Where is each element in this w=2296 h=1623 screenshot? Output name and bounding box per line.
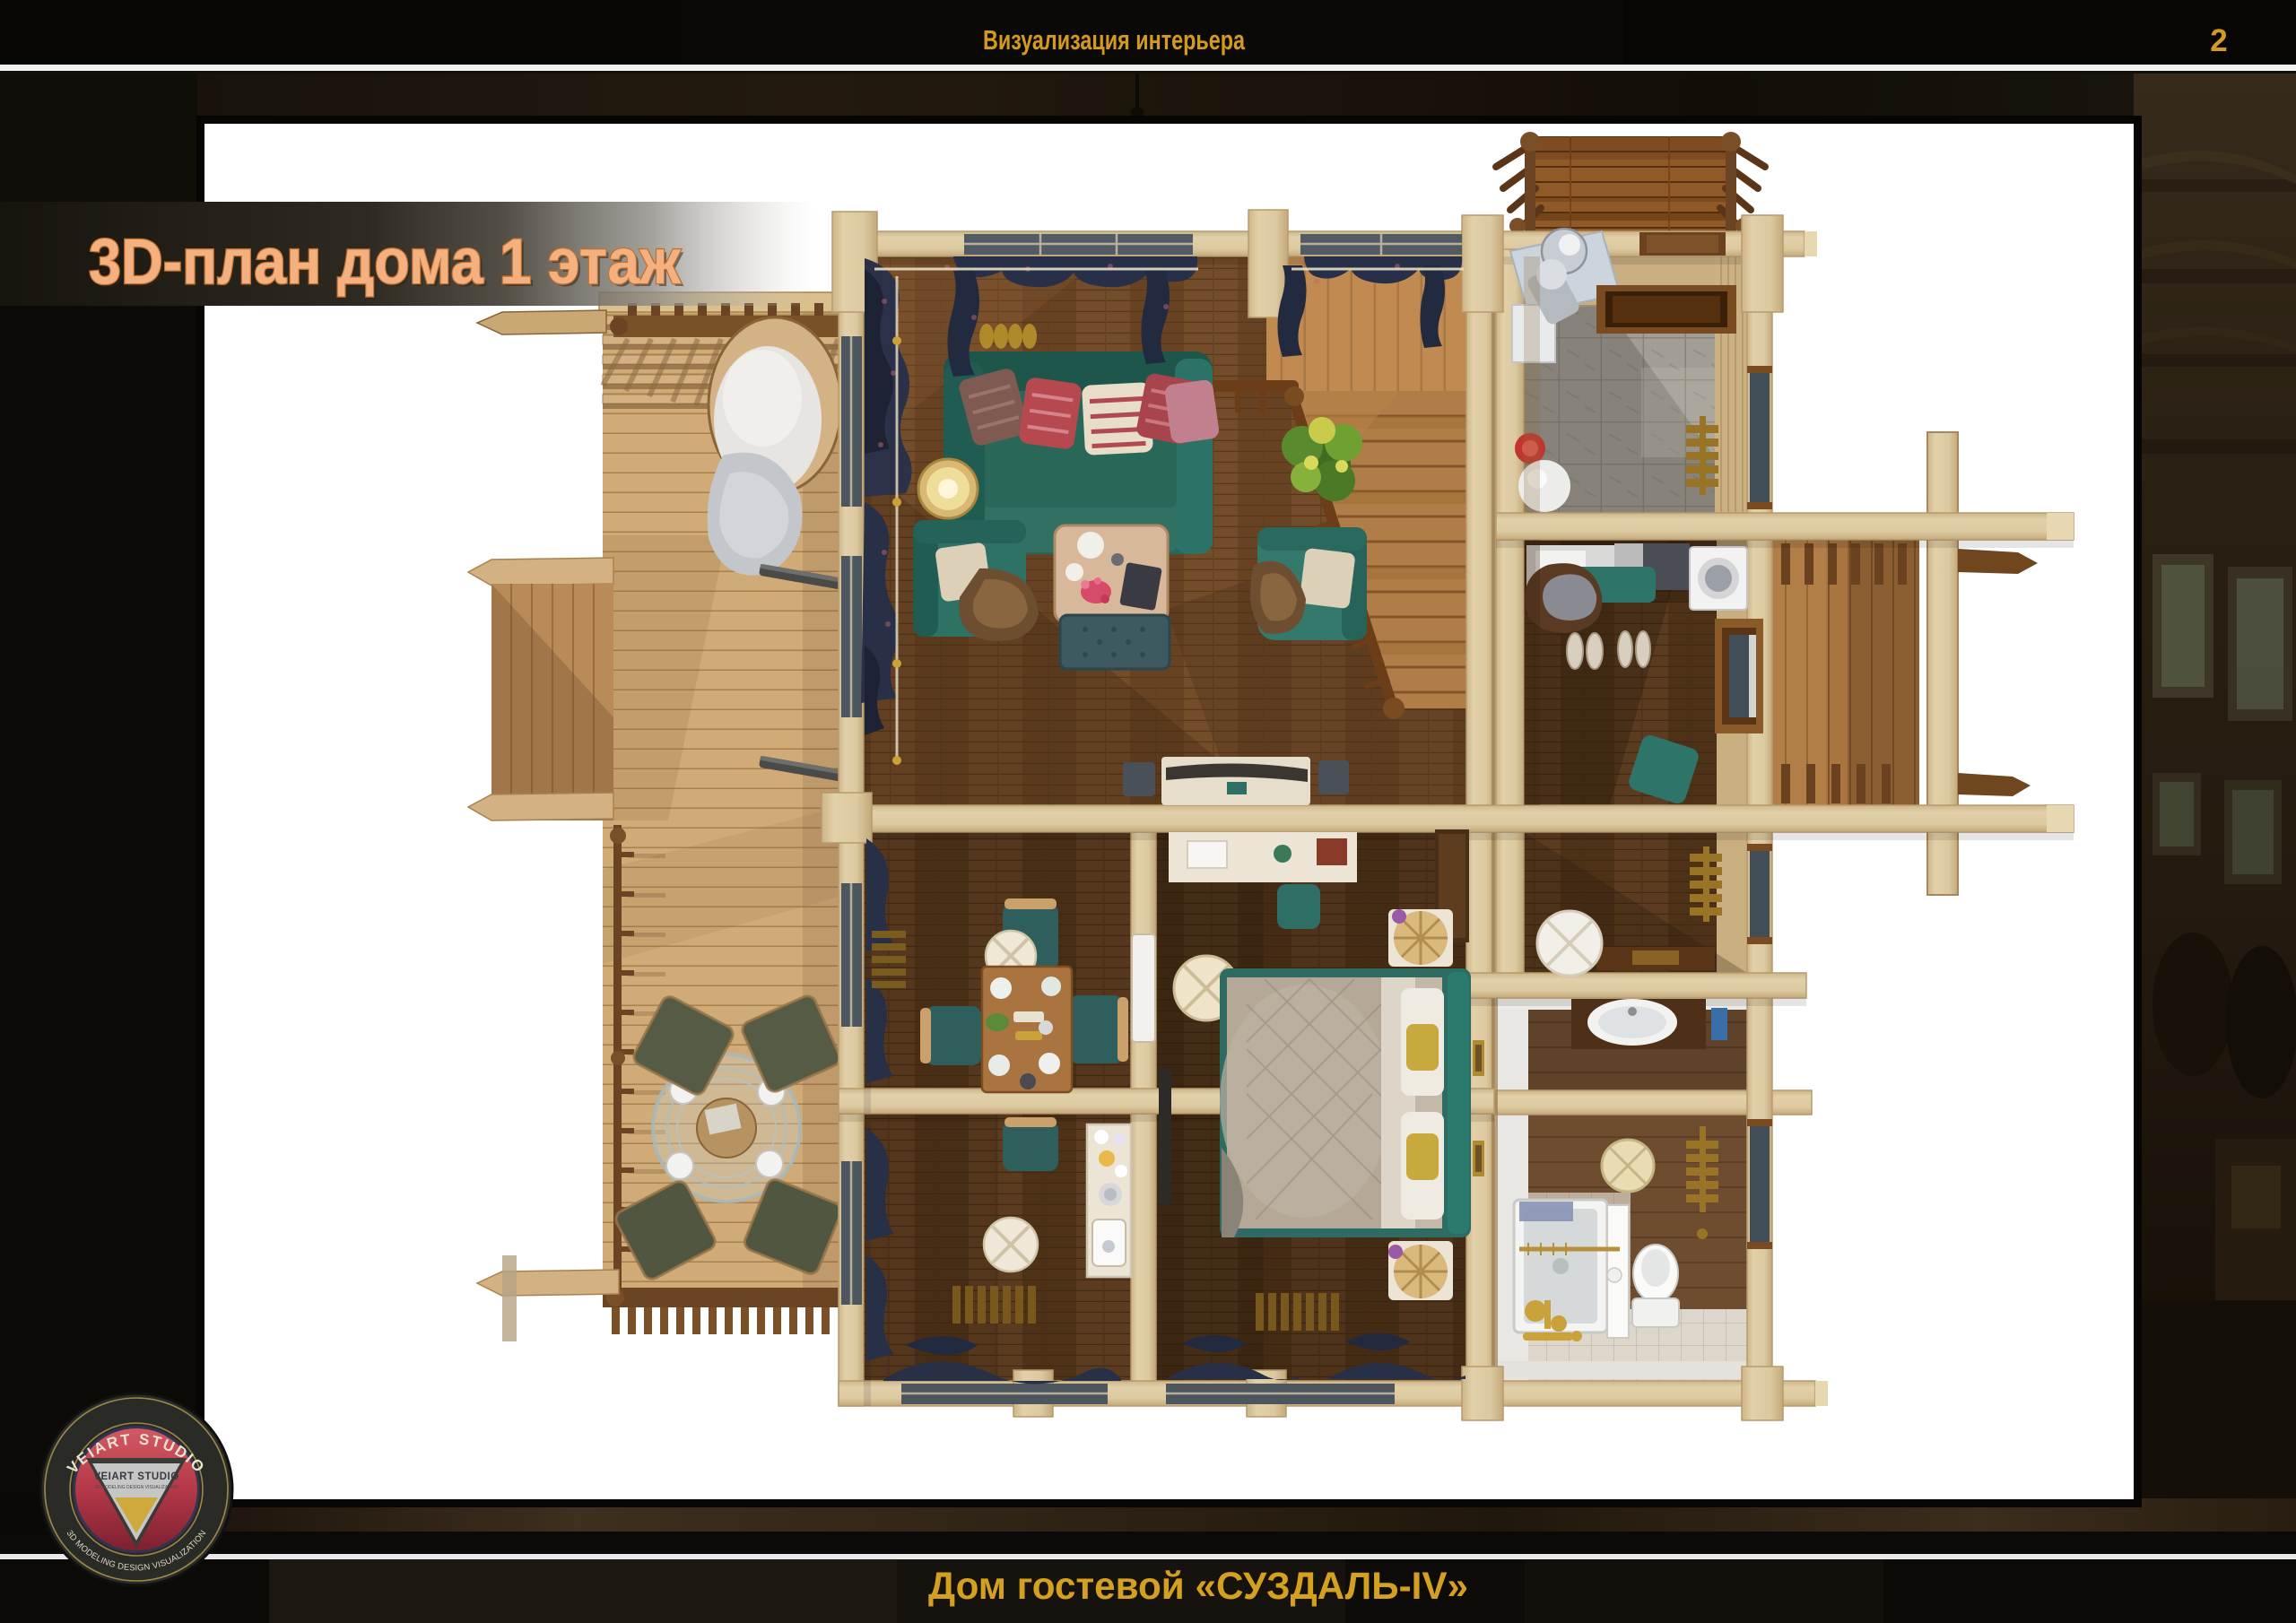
svg-text:Визуализация интерьера: Визуализация интерьера — [983, 24, 1246, 56]
svg-text:3D MODELING DESIGN VISUALIZATI: 3D MODELING DESIGN VISUALIZATION — [94, 1485, 178, 1490]
svg-text:3D-план дома 1 этаж: 3D-план дома 1 этаж — [89, 227, 682, 298]
svg-text:2: 2 — [2210, 23, 2227, 58]
svg-text:VEIART STUDIO: VEIART STUDIO — [93, 1471, 178, 1482]
svg-text:Дом гостевой «СУЗДАЛЬ-IV»: Дом гостевой «СУЗДАЛЬ-IV» — [928, 1565, 1468, 1608]
